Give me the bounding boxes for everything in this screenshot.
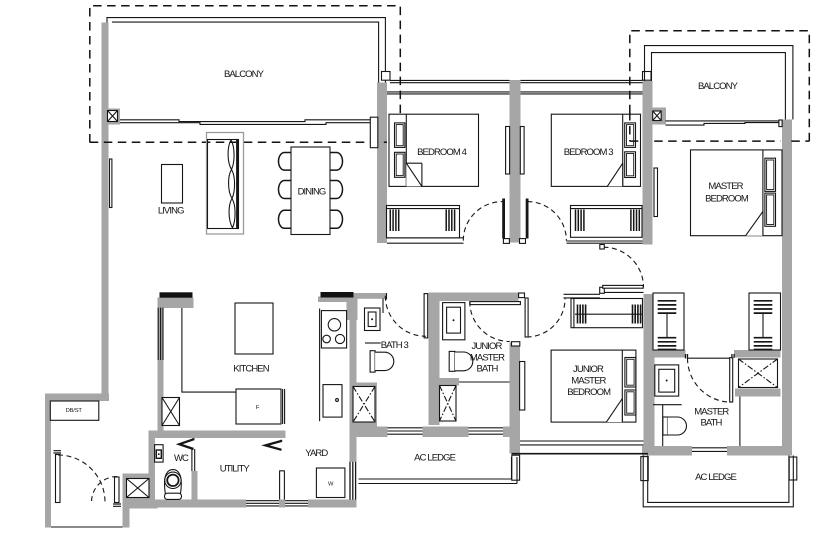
svg-text:DB/ST: DB/ST (66, 408, 83, 414)
svg-text:BEDROOM 4: BEDROOM 4 (417, 147, 467, 158)
svg-text:BATH 3: BATH 3 (381, 340, 409, 351)
svg-text:MASTER: MASTER (708, 181, 743, 192)
svg-text:BEDROOM 3: BEDROOM 3 (564, 147, 614, 158)
svg-text:MASTER: MASTER (694, 406, 729, 417)
svg-text:AC LEDGE: AC LEDGE (414, 452, 455, 463)
svg-text:BATH: BATH (476, 364, 498, 375)
svg-text:JUNIOR: JUNIOR (472, 341, 503, 352)
svg-text:UTILITY: UTILITY (220, 463, 251, 474)
svg-text:BEDROOM: BEDROOM (705, 194, 749, 205)
svg-text:YARD: YARD (305, 448, 328, 459)
svg-text:BATH: BATH (700, 418, 722, 429)
svg-text:WC: WC (174, 453, 189, 464)
svg-text:BALCONY: BALCONY (224, 69, 265, 80)
svg-text:AC LEDGE: AC LEDGE (695, 472, 736, 483)
svg-text:MASTER: MASTER (571, 376, 606, 387)
svg-text:DINING: DINING (298, 186, 326, 197)
svg-text:LIVING: LIVING (158, 205, 184, 216)
svg-text:W: W (328, 481, 334, 487)
svg-text:MASTER: MASTER (470, 352, 505, 363)
svg-text:BALCONY: BALCONY (698, 81, 739, 92)
svg-text:KITCHEN: KITCHEN (233, 363, 269, 374)
svg-text:JUNIOR: JUNIOR (573, 364, 604, 375)
svg-text:BEDROOM: BEDROOM (567, 387, 611, 398)
